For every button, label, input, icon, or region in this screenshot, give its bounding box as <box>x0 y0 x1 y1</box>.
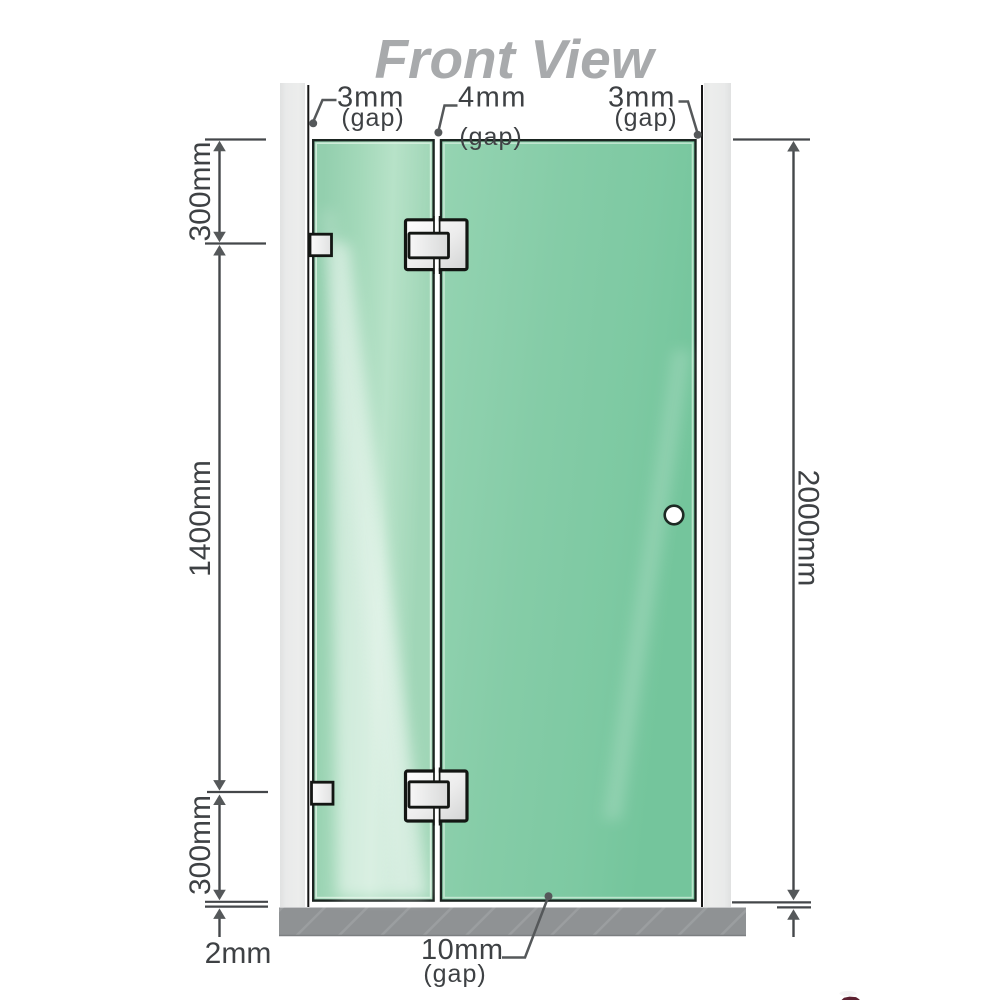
svg-text:(gap): (gap) <box>423 960 486 988</box>
svg-text:(gap): (gap) <box>459 123 522 151</box>
svg-text:1400mm: 1400mm <box>184 460 217 577</box>
svg-text:300mm: 300mm <box>184 141 217 241</box>
svg-text:4mm: 4mm <box>458 82 527 114</box>
svg-text:2000mm: 2000mm <box>792 470 825 587</box>
svg-text:300mm: 300mm <box>184 795 217 895</box>
svg-text:(gap): (gap) <box>614 104 677 132</box>
svg-text:2mm: 2mm <box>205 937 272 970</box>
svg-text:(gap): (gap) <box>341 104 404 132</box>
